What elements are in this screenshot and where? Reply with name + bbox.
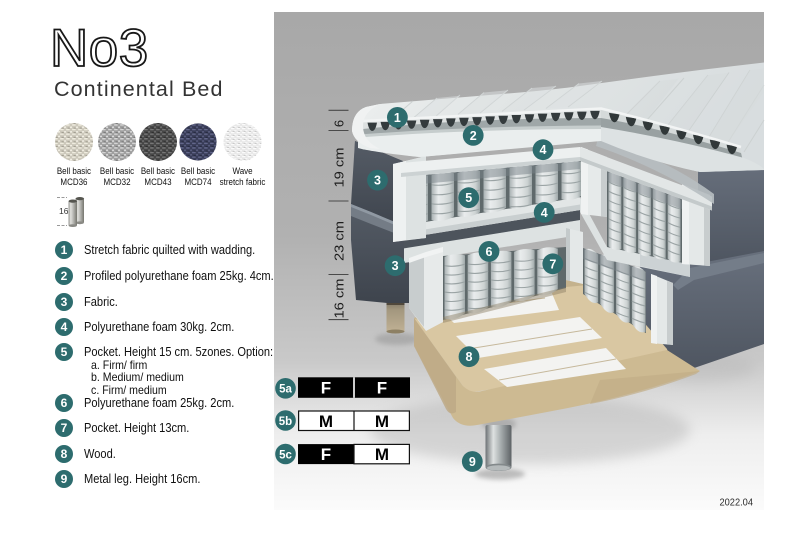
svg-text:5b: 5b xyxy=(279,416,292,428)
svg-text:2: 2 xyxy=(470,129,477,143)
svg-text:23 cm: 23 cm xyxy=(331,221,346,261)
svg-text:M: M xyxy=(319,412,333,431)
svg-text:3: 3 xyxy=(374,174,381,188)
svg-text:2022.04: 2022.04 xyxy=(720,497,754,509)
svg-text:19 cm: 19 cm xyxy=(331,148,346,188)
svg-text:5: 5 xyxy=(465,191,472,205)
svg-text:3: 3 xyxy=(392,259,399,273)
svg-text:1: 1 xyxy=(394,111,401,125)
svg-text:F: F xyxy=(377,379,387,398)
svg-text:F: F xyxy=(321,379,331,398)
svg-text:9: 9 xyxy=(469,455,476,469)
svg-text:4: 4 xyxy=(541,206,548,220)
svg-text:8: 8 xyxy=(466,350,473,364)
svg-text:F: F xyxy=(321,445,331,464)
svg-text:5a: 5a xyxy=(279,384,292,396)
svg-text:6: 6 xyxy=(331,120,346,127)
svg-text:7: 7 xyxy=(549,257,556,271)
svg-text:4: 4 xyxy=(540,143,547,157)
svg-text:M: M xyxy=(375,412,389,431)
svg-text:6: 6 xyxy=(486,245,493,259)
svg-text:16 cm: 16 cm xyxy=(331,279,346,319)
svg-text:5c: 5c xyxy=(279,449,292,461)
svg-text:M: M xyxy=(375,445,389,464)
